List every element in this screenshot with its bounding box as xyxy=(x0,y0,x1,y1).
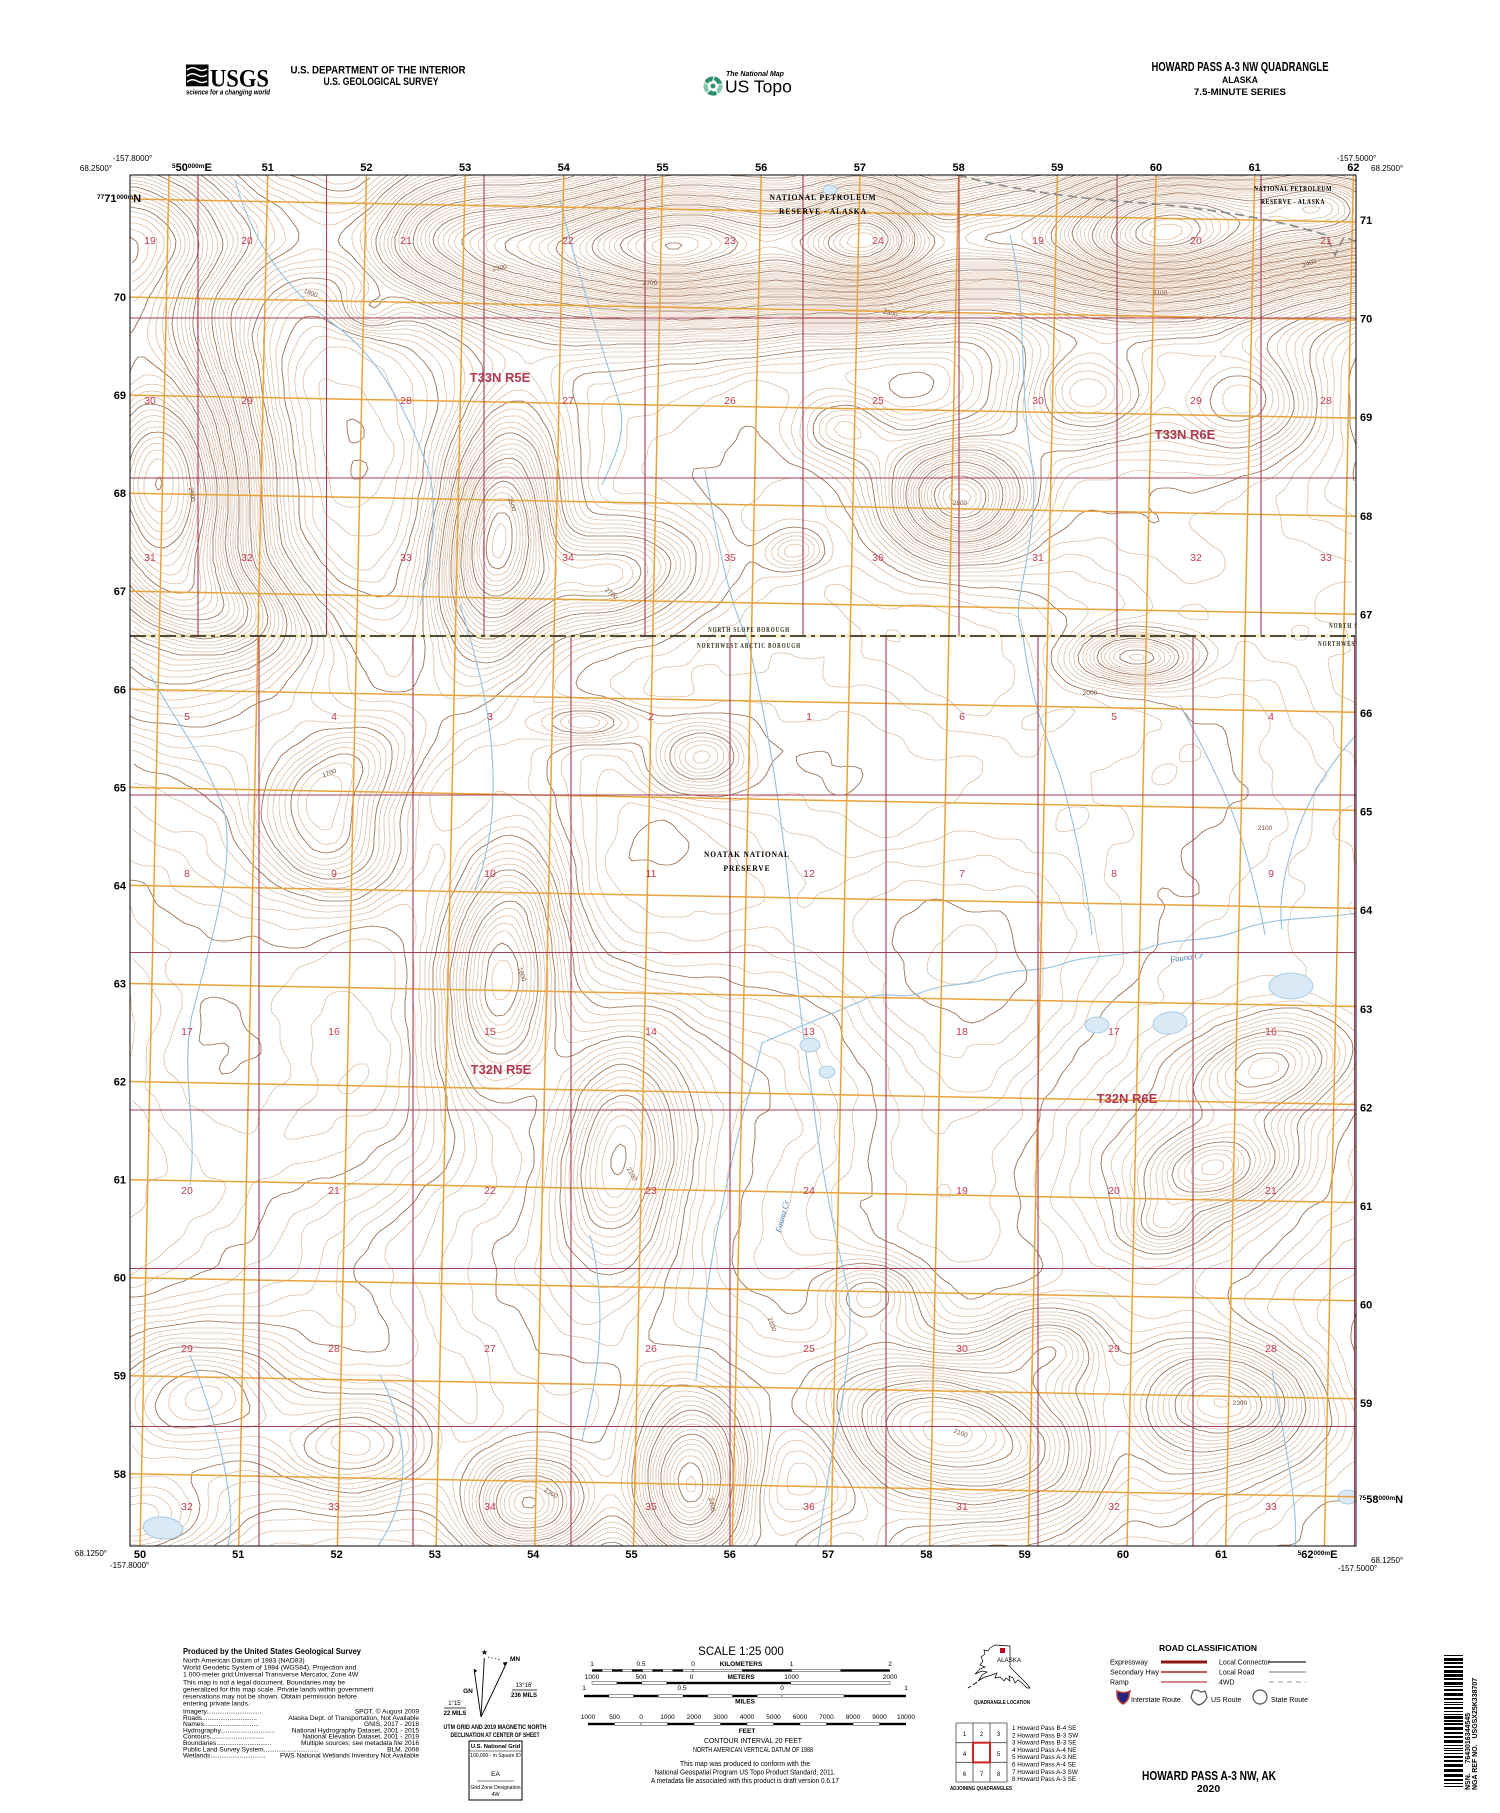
svg-text:60: 60 xyxy=(1150,162,1162,174)
svg-text:61: 61 xyxy=(1249,162,1261,174)
svg-text:69: 69 xyxy=(1360,412,1372,424)
svg-text:56: 56 xyxy=(755,162,767,174)
svg-text:6 Howard Pass A-4 SE: 6 Howard Pass A-4 SE xyxy=(1012,1762,1076,1769)
svg-text:5: 5 xyxy=(997,1752,1001,1758)
svg-text:2 Howard Pass B-3 SW: 2 Howard Pass B-3 SW xyxy=(1012,1732,1078,1739)
svg-text:6: 6 xyxy=(963,1772,967,1778)
svg-text:1: 1 xyxy=(582,1685,586,1692)
svg-text:21: 21 xyxy=(1320,235,1332,247)
svg-text:MN: MN xyxy=(510,1656,520,1663)
svg-text:550000mE: 550000mE xyxy=(172,162,212,174)
svg-text:-157.5000°: -157.5000° xyxy=(1337,154,1376,163)
svg-text:reservations may not be shown.: reservations may not be shown. Obtain pe… xyxy=(183,1694,357,1701)
svg-text:68: 68 xyxy=(114,488,126,500)
svg-text:57: 57 xyxy=(854,162,866,174)
svg-text:60: 60 xyxy=(1360,1300,1372,1312)
svg-text:65: 65 xyxy=(1360,807,1372,819)
svg-text:-157.5000°: -157.5000° xyxy=(1338,1564,1377,1573)
svg-text:28: 28 xyxy=(400,395,412,407)
svg-text:2: 2 xyxy=(648,711,654,723)
svg-text:ROAD CLASSIFICATION: ROAD CLASSIFICATION xyxy=(1159,1643,1257,1653)
svg-text:27: 27 xyxy=(484,1343,496,1355)
svg-text:55: 55 xyxy=(656,162,668,174)
svg-text:70: 70 xyxy=(1360,314,1372,326)
svg-text:35: 35 xyxy=(645,1501,657,1513)
svg-text:3: 3 xyxy=(487,711,493,723)
svg-text:Grid Zone Designation: Grid Zone Designation xyxy=(470,1785,520,1791)
svg-text:10: 10 xyxy=(484,868,496,880)
svg-text:33: 33 xyxy=(328,1501,340,1513)
svg-text:58: 58 xyxy=(114,1469,126,1481)
svg-text:4W: 4W xyxy=(491,1792,500,1798)
svg-text:9: 9 xyxy=(331,868,337,880)
svg-text:236 MILS: 236 MILS xyxy=(511,1693,537,1699)
svg-text:34: 34 xyxy=(484,1501,496,1513)
svg-text:8: 8 xyxy=(1111,868,1117,880)
svg-text:500: 500 xyxy=(609,1714,620,1721)
svg-text:68.2500°: 68.2500° xyxy=(1371,164,1403,173)
svg-text:68.2500°: 68.2500° xyxy=(80,164,112,173)
svg-text:20: 20 xyxy=(1190,235,1202,247)
svg-text:Expressway: Expressway xyxy=(1110,1660,1148,1667)
svg-text:51: 51 xyxy=(262,162,274,174)
svg-text:66: 66 xyxy=(114,684,126,696)
svg-text:17: 17 xyxy=(181,1026,193,1038)
svg-text:62: 62 xyxy=(1360,1102,1372,1114)
svg-text:60: 60 xyxy=(1117,1549,1129,1561)
svg-text:PRESERVE: PRESERVE xyxy=(724,863,771,873)
svg-text:NSN. 7643016344545: NSN. 7643016344545 xyxy=(1465,1713,1472,1790)
svg-text:18: 18 xyxy=(956,1026,968,1038)
svg-text:1000: 1000 xyxy=(585,1674,600,1681)
svg-text:32: 32 xyxy=(241,552,253,564)
svg-text:science for a changing world: science for a changing world xyxy=(186,88,271,97)
svg-text:20: 20 xyxy=(1108,1185,1120,1197)
svg-text:0: 0 xyxy=(691,1661,695,1668)
svg-text:20: 20 xyxy=(181,1185,193,1197)
svg-text:62: 62 xyxy=(1347,162,1359,174)
svg-text:32: 32 xyxy=(1190,552,1202,564)
svg-text:Local Road: Local Road xyxy=(1219,1670,1255,1677)
svg-text:2000: 2000 xyxy=(883,1674,898,1681)
svg-text:NGA REF NO. USGSX25K338707: NGA REF NO. USGSX25K338707 xyxy=(1472,1678,1479,1790)
svg-text:4: 4 xyxy=(963,1752,967,1758)
svg-text:61: 61 xyxy=(114,1175,126,1187)
svg-text:21: 21 xyxy=(400,235,412,247)
svg-text:23: 23 xyxy=(645,1185,657,1197)
svg-text:13°16': 13°16' xyxy=(516,1683,533,1689)
svg-text:36: 36 xyxy=(803,1501,815,1513)
svg-text:7: 7 xyxy=(959,868,965,880)
svg-text:This map was produced to confo: This map was produced to conform with th… xyxy=(680,1761,810,1768)
svg-text:30: 30 xyxy=(956,1343,968,1355)
svg-text:10000: 10000 xyxy=(897,1714,915,1721)
svg-text:T32N R5E: T32N R5E xyxy=(471,1062,532,1077)
svg-text:68.1250°: 68.1250° xyxy=(75,1549,107,1558)
svg-text:North American Datum of 1983 (: North American Datum of 1983 (NAD83) xyxy=(183,1658,305,1665)
svg-text:2: 2 xyxy=(888,1661,892,1668)
svg-text:20: 20 xyxy=(241,235,253,247)
svg-text:31: 31 xyxy=(1032,552,1044,564)
svg-text:1 000-meter grid:Universal Tra: 1 000-meter grid:Universal Transverse Me… xyxy=(183,1672,359,1679)
svg-text:U.S. DEPARTMENT OF THE INTERIO: U.S. DEPARTMENT OF THE INTERIOR xyxy=(291,65,466,77)
svg-text:56: 56 xyxy=(724,1549,736,1561)
svg-text:59: 59 xyxy=(1019,1549,1031,1561)
svg-text:8 Howard Pass A-3 SE: 8 Howard Pass A-3 SE xyxy=(1012,1776,1076,1783)
svg-text:11: 11 xyxy=(646,868,657,880)
svg-text:SCALE 1:25 000: SCALE 1:25 000 xyxy=(698,1646,784,1658)
svg-text:29: 29 xyxy=(241,395,253,407)
svg-text:16: 16 xyxy=(1265,1026,1277,1038)
svg-text:4000: 4000 xyxy=(740,1714,755,1721)
svg-text:30: 30 xyxy=(1032,395,1044,407)
svg-text:562000mE: 562000mE xyxy=(1298,1549,1338,1561)
svg-text:8000: 8000 xyxy=(846,1714,861,1721)
svg-text:61: 61 xyxy=(1360,1201,1372,1213)
svg-text:2020: 2020 xyxy=(1197,1783,1221,1795)
svg-text:Wetlands......................: Wetlands.............................. xyxy=(183,1753,265,1760)
svg-text:30: 30 xyxy=(144,395,156,407)
svg-text:52: 52 xyxy=(360,162,372,174)
svg-text:54: 54 xyxy=(558,162,571,174)
svg-text:13: 13 xyxy=(803,1026,815,1038)
svg-text:60: 60 xyxy=(114,1273,126,1285)
svg-text:NORTHWEST ARCTIC BOROUGH: NORTHWEST ARCTIC BOROUGH xyxy=(1318,641,1422,648)
svg-text:GN: GN xyxy=(463,1688,473,1695)
svg-text:4: 4 xyxy=(1268,711,1274,723)
svg-text:28: 28 xyxy=(328,1343,340,1355)
svg-text:53: 53 xyxy=(459,162,471,174)
svg-text:7: 7 xyxy=(980,1772,984,1778)
svg-text:1: 1 xyxy=(590,1661,594,1668)
svg-text:6000: 6000 xyxy=(793,1714,808,1721)
svg-text:6: 6 xyxy=(959,711,965,723)
svg-text:62: 62 xyxy=(114,1077,126,1089)
svg-text:1000: 1000 xyxy=(581,1714,596,1721)
svg-text:68: 68 xyxy=(1360,511,1372,523)
svg-text:21: 21 xyxy=(328,1185,340,1197)
svg-text:1: 1 xyxy=(963,1732,967,1738)
svg-text:24: 24 xyxy=(872,235,884,247)
svg-text:58: 58 xyxy=(920,1549,932,1561)
svg-text:FWS National Wetlands In: FWS National Wetlands Inventory Not Avai… xyxy=(280,1753,419,1760)
svg-text:7558000mN: 7558000mN xyxy=(1359,1494,1403,1506)
svg-text:51: 51 xyxy=(232,1549,244,1561)
svg-text:Secondary Hwy: Secondary Hwy xyxy=(1110,1670,1160,1677)
svg-text:4WD: 4WD xyxy=(1219,1680,1235,1687)
svg-text:7000: 7000 xyxy=(819,1714,834,1721)
svg-text:7.5-MINUTE SERIES: 7.5-MINUTE SERIES xyxy=(1194,87,1286,97)
svg-text:0: 0 xyxy=(780,1685,784,1692)
svg-text:T32N R6E: T32N R6E xyxy=(1097,1091,1158,1106)
svg-text:22 MILS: 22 MILS xyxy=(444,1711,467,1717)
svg-text:RESERVE - ALASKA: RESERVE - ALASKA xyxy=(1261,197,1325,206)
svg-text:US Route: US Route xyxy=(1211,1697,1241,1704)
svg-text:2100: 2100 xyxy=(1258,825,1273,832)
svg-text:22: 22 xyxy=(562,235,574,247)
svg-text:57: 57 xyxy=(822,1549,834,1561)
svg-text:4: 4 xyxy=(331,711,337,723)
svg-text:19: 19 xyxy=(956,1185,968,1197)
svg-text:59: 59 xyxy=(1051,162,1063,174)
svg-text:23: 23 xyxy=(724,235,736,247)
svg-text:29: 29 xyxy=(181,1343,193,1355)
svg-text:5: 5 xyxy=(1111,711,1117,723)
svg-text:3: 3 xyxy=(997,1732,1001,1738)
svg-text:0.5: 0.5 xyxy=(677,1685,686,1692)
svg-text:1000: 1000 xyxy=(784,1674,799,1681)
svg-text:31: 31 xyxy=(144,552,156,564)
svg-text:33: 33 xyxy=(400,552,412,564)
svg-text:64: 64 xyxy=(114,880,127,892)
svg-text:54: 54 xyxy=(527,1549,540,1561)
svg-text:0.5: 0.5 xyxy=(636,1661,645,1668)
svg-text:NORTH AMERICAN VERTICAL DATUM: NORTH AMERICAN VERTICAL DATUM OF 1988 xyxy=(693,1745,813,1754)
svg-text:Produced by the United States: Produced by the United States Geological… xyxy=(183,1646,361,1656)
svg-text:1°15': 1°15' xyxy=(448,1701,462,1707)
svg-text:State Route: State Route xyxy=(1271,1697,1308,1704)
svg-text:65: 65 xyxy=(114,782,126,794)
svg-text:67: 67 xyxy=(1360,609,1372,621)
svg-text:24: 24 xyxy=(803,1185,815,1197)
svg-text:Interstate Route: Interstate Route xyxy=(1131,1697,1181,1704)
svg-text:3 Howard Pass B-3 SE: 3 Howard Pass B-3 SE xyxy=(1012,1740,1076,1747)
svg-text:NATIONAL PETROLEUM: NATIONAL PETROLEUM xyxy=(770,192,877,202)
svg-text:22: 22 xyxy=(484,1185,496,1197)
svg-text:U.S. GEOLOGICAL SURVEY: U.S. GEOLOGICAL SURVEY xyxy=(324,76,440,88)
svg-text:National Geospatial Program US: National Geospatial Program US Topo Prod… xyxy=(655,1770,836,1777)
svg-text:33: 33 xyxy=(1265,1501,1277,1513)
svg-text:T33N R6E: T33N R6E xyxy=(1155,427,1216,442)
svg-text:-157.8000°: -157.8000° xyxy=(113,154,152,163)
svg-text:55: 55 xyxy=(625,1549,637,1561)
svg-text:generalized for this map scale: generalized for this map scale. Private … xyxy=(183,1687,374,1694)
svg-text:NORTH SLOPE BOROUGH: NORTH SLOPE BOROUGH xyxy=(708,627,790,634)
svg-text:9: 9 xyxy=(1268,868,1274,880)
svg-text:21: 21 xyxy=(1265,1185,1277,1197)
svg-text:-157.8000°: -157.8000° xyxy=(110,1561,149,1570)
svg-text:31: 31 xyxy=(956,1501,968,1513)
svg-text:100,000 - m Square ID: 100,000 - m Square ID xyxy=(470,1753,521,1759)
svg-text:5000: 5000 xyxy=(766,1714,781,1721)
svg-text:2300: 2300 xyxy=(1233,1400,1248,1407)
svg-text:66: 66 xyxy=(1360,708,1372,720)
svg-text:28: 28 xyxy=(1265,1343,1277,1355)
svg-text:This map is not a legal docume: This map is not a legal document. Bounda… xyxy=(183,1680,345,1687)
svg-text:26: 26 xyxy=(645,1343,657,1355)
svg-text:69: 69 xyxy=(114,390,126,402)
svg-text:58: 58 xyxy=(952,162,964,174)
svg-text:35: 35 xyxy=(724,552,736,564)
svg-text:ADJOINING QUADRANGLES: ADJOINING QUADRANGLES xyxy=(950,1786,1012,1792)
svg-text:32: 32 xyxy=(181,1501,193,1513)
svg-text:500: 500 xyxy=(636,1674,647,1681)
svg-text:5: 5 xyxy=(184,711,190,723)
svg-text:25: 25 xyxy=(803,1343,815,1355)
svg-text:9000: 9000 xyxy=(872,1714,887,1721)
svg-text:ALASKA: ALASKA xyxy=(997,1657,1022,1664)
svg-text:entering private lands.: entering private lands. xyxy=(183,1701,250,1708)
svg-text:A metadata file associated wit: A metadata file associated with this pro… xyxy=(651,1778,839,1785)
svg-text:2: 2 xyxy=(980,1732,984,1738)
svg-text:28: 28 xyxy=(1320,395,1332,407)
svg-text:12: 12 xyxy=(803,868,815,880)
svg-text:0: 0 xyxy=(690,1674,694,1681)
svg-text:36: 36 xyxy=(872,552,884,564)
svg-text:7771000mN: 7771000mN xyxy=(97,193,141,205)
svg-text:1 Howard Pass B-4 SE: 1 Howard Pass B-4 SE xyxy=(1012,1725,1076,1732)
svg-text:15: 15 xyxy=(484,1026,496,1038)
svg-text:27: 27 xyxy=(562,395,574,407)
svg-text:U.S. National Grid: U.S. National Grid xyxy=(471,1744,521,1750)
svg-text:1: 1 xyxy=(904,1685,908,1692)
svg-text:50: 50 xyxy=(134,1549,146,1561)
svg-text:1: 1 xyxy=(806,711,812,723)
svg-text:T33N R5E: T33N R5E xyxy=(470,370,531,385)
svg-text:33: 33 xyxy=(1320,552,1332,564)
svg-text:29: 29 xyxy=(1108,1343,1120,1355)
svg-text:8: 8 xyxy=(184,868,190,880)
svg-text:26: 26 xyxy=(724,395,736,407)
svg-text:CONTOUR INTERVAL 20 FEET: CONTOUR INTERVAL 20 FEET xyxy=(704,1736,802,1745)
svg-text:59: 59 xyxy=(1360,1398,1372,1410)
svg-text:2000: 2000 xyxy=(687,1714,702,1721)
svg-text:7 Howard Pass A-3 SW: 7 Howard Pass A-3 SW xyxy=(1012,1769,1078,1776)
svg-text:NATIONAL PETROLEUM: NATIONAL PETROLEUM xyxy=(1254,184,1332,193)
svg-text:3000: 3000 xyxy=(713,1714,728,1721)
svg-text:2800: 2800 xyxy=(953,500,968,507)
svg-text:EA: EA xyxy=(491,1771,500,1778)
svg-text:NORTH SLOPE BOROUGH: NORTH SLOPE BOROUGH xyxy=(1329,623,1411,630)
svg-text:US Topo: US Topo xyxy=(725,77,792,97)
svg-text:19: 19 xyxy=(1032,235,1044,247)
svg-text:HOWARD PASS A-3 NW, AK: HOWARD PASS A-3 NW, AK xyxy=(1142,1768,1276,1783)
svg-text:★: ★ xyxy=(481,1648,488,1657)
svg-text:63: 63 xyxy=(114,978,126,990)
svg-text:RESERVE - ALASKA: RESERVE - ALASKA xyxy=(779,206,867,216)
svg-text:2700: 2700 xyxy=(643,280,658,287)
svg-text:ALASKA: ALASKA xyxy=(1222,75,1258,85)
svg-text:14: 14 xyxy=(645,1026,657,1038)
svg-text:67: 67 xyxy=(114,586,126,598)
svg-text:METERS: METERS xyxy=(727,1674,755,1681)
svg-text:NORTHWEST ARCTIC BOROUGH: NORTHWEST ARCTIC BOROUGH xyxy=(697,643,801,650)
svg-text:2000: 2000 xyxy=(1083,690,1098,697)
svg-text:17: 17 xyxy=(1108,1026,1120,1038)
svg-text:MILES: MILES xyxy=(735,1699,756,1706)
svg-text:63: 63 xyxy=(1360,1004,1372,1016)
svg-text:UTM GRID AND 2019 MAGNETIC NOR: UTM GRID AND 2019 MAGNETIC NORTH xyxy=(444,1724,547,1731)
svg-text:25: 25 xyxy=(872,395,884,407)
svg-text:NOATAK NATIONAL: NOATAK NATIONAL xyxy=(704,849,790,859)
svg-text:64: 64 xyxy=(1360,905,1373,917)
svg-text:71: 71 xyxy=(1360,215,1372,227)
svg-text:59: 59 xyxy=(114,1371,126,1383)
svg-text:QUADRANGLE LOCATION: QUADRANGLE LOCATION xyxy=(974,1700,1030,1706)
svg-text:KILOMETERS: KILOMETERS xyxy=(720,1661,763,1668)
svg-text:1000: 1000 xyxy=(660,1714,675,1721)
svg-text:29: 29 xyxy=(1190,395,1202,407)
svg-text:16: 16 xyxy=(328,1026,340,1038)
svg-text:0: 0 xyxy=(639,1714,643,1721)
svg-text:19: 19 xyxy=(144,235,156,247)
svg-text:52: 52 xyxy=(330,1549,342,1561)
svg-text:34: 34 xyxy=(562,552,574,564)
svg-text:DECLINATION AT CENTER OF SHEET: DECLINATION AT CENTER OF SHEET xyxy=(451,1732,540,1739)
svg-text:70: 70 xyxy=(114,292,126,304)
svg-text:Local Connector: Local Connector xyxy=(1219,1660,1271,1667)
svg-text:Ramp: Ramp xyxy=(1110,1680,1129,1687)
svg-text:8: 8 xyxy=(997,1772,1001,1778)
svg-text:World Geodetic System of 1984: World Geodetic System of 1984 (WGS84). P… xyxy=(183,1665,356,1672)
svg-text:HOWARD PASS A-3 NW QUADRANGLE: HOWARD PASS A-3 NW QUADRANGLE xyxy=(1152,59,1329,74)
svg-text:32: 32 xyxy=(1108,1501,1120,1513)
svg-text:53: 53 xyxy=(429,1549,441,1561)
svg-text:4 Howard Pass A-4 NE: 4 Howard Pass A-4 NE xyxy=(1012,1747,1076,1754)
svg-text:3100: 3100 xyxy=(1153,290,1168,297)
svg-text:61: 61 xyxy=(1215,1549,1227,1561)
svg-text:1: 1 xyxy=(790,1661,794,1668)
svg-text:FEET: FEET xyxy=(739,1728,756,1735)
svg-text:5 Howard Pass A-3 NE: 5 Howard Pass A-3 NE xyxy=(1012,1754,1076,1761)
